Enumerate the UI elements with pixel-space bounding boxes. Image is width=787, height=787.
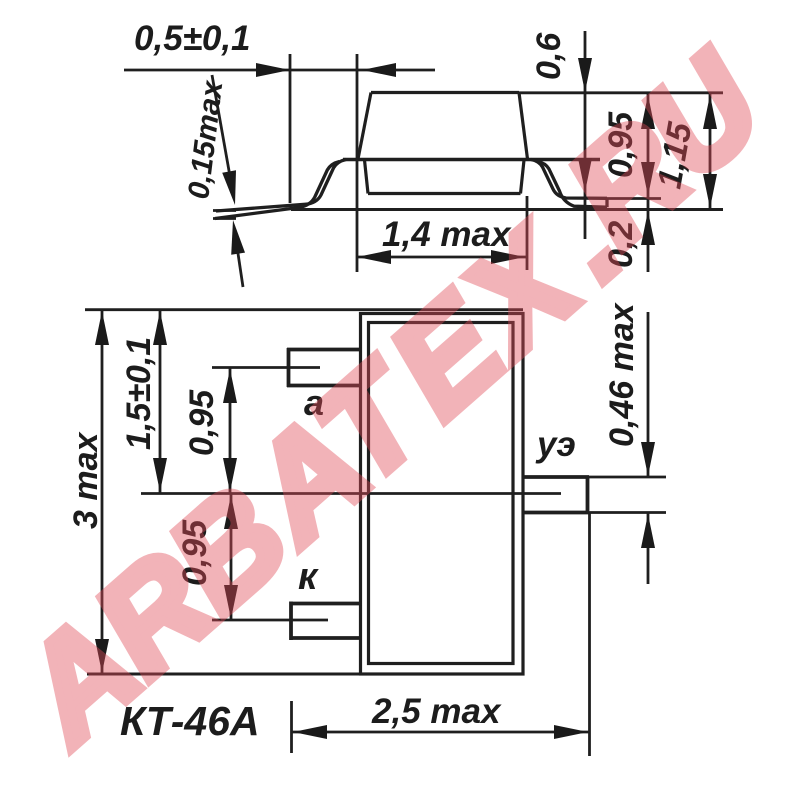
svg-text:0,95: 0,95 bbox=[183, 389, 221, 456]
svg-text:0,46 max: 0,46 max bbox=[603, 301, 641, 447]
svg-text:3 max: 3 max bbox=[67, 431, 105, 529]
svg-text:0,6: 0,6 bbox=[530, 32, 568, 80]
svg-text:уэ: уэ bbox=[535, 425, 576, 464]
svg-text:0,5±0,1: 0,5±0,1 bbox=[134, 19, 251, 58]
svg-text:1,5±0,1: 1,5±0,1 bbox=[120, 337, 158, 450]
svg-text:2,5 max: 2,5 max bbox=[371, 692, 502, 731]
